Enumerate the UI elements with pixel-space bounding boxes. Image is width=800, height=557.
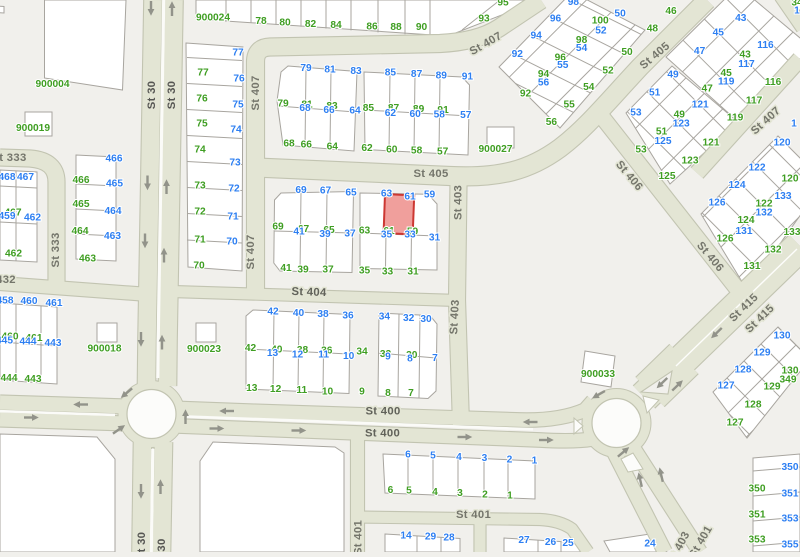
svg-text:68: 68 xyxy=(299,103,311,114)
svg-text:92: 92 xyxy=(512,49,524,60)
svg-text:120: 120 xyxy=(782,174,799,185)
svg-text:62: 62 xyxy=(385,108,397,119)
svg-text:66: 66 xyxy=(323,105,335,116)
svg-text:80: 80 xyxy=(279,18,291,29)
svg-text:128: 128 xyxy=(735,365,752,376)
svg-text:32: 32 xyxy=(403,313,415,324)
svg-text:St 405: St 405 xyxy=(413,168,448,180)
svg-text:37: 37 xyxy=(322,265,334,276)
svg-text:7: 7 xyxy=(408,388,414,399)
svg-text:71: 71 xyxy=(194,235,206,246)
svg-text:76: 76 xyxy=(233,74,245,85)
svg-text:53: 53 xyxy=(630,107,642,118)
svg-text:34: 34 xyxy=(379,312,391,323)
svg-text:48: 48 xyxy=(647,24,659,35)
svg-text:75: 75 xyxy=(196,119,208,130)
svg-text:463: 463 xyxy=(79,254,96,265)
svg-text:129: 129 xyxy=(754,348,771,359)
svg-text:353: 353 xyxy=(749,535,766,546)
svg-text:35: 35 xyxy=(381,230,393,241)
svg-text:9: 9 xyxy=(385,352,391,363)
svg-text:88: 88 xyxy=(390,22,402,33)
svg-text:465: 465 xyxy=(106,179,123,190)
svg-text:123: 123 xyxy=(673,119,690,130)
svg-text:60: 60 xyxy=(386,144,398,155)
svg-text:467: 467 xyxy=(17,172,34,183)
svg-text:St 404: St 404 xyxy=(291,286,327,299)
svg-text:2: 2 xyxy=(482,490,488,501)
svg-text:St 30: St 30 xyxy=(136,532,148,552)
svg-text:353: 353 xyxy=(782,514,799,525)
svg-text:117: 117 xyxy=(746,96,763,107)
svg-text:129: 129 xyxy=(764,382,781,393)
svg-text:124: 124 xyxy=(729,180,746,191)
svg-text:130: 130 xyxy=(774,331,791,342)
svg-text:56: 56 xyxy=(538,77,550,88)
svg-text:5: 5 xyxy=(430,451,436,462)
svg-text:69: 69 xyxy=(295,185,307,196)
svg-text:62: 62 xyxy=(361,143,373,154)
svg-text:57: 57 xyxy=(460,110,472,121)
svg-text:900033: 900033 xyxy=(581,369,615,380)
svg-text:St 333: St 333 xyxy=(50,232,62,267)
svg-text:12: 12 xyxy=(270,384,282,395)
svg-text:463: 463 xyxy=(104,231,121,242)
svg-text:40: 40 xyxy=(293,308,305,319)
svg-text:29: 29 xyxy=(425,532,437,543)
svg-text:126: 126 xyxy=(709,198,726,209)
svg-text:119: 119 xyxy=(718,77,735,88)
svg-text:461: 461 xyxy=(46,298,63,309)
svg-text:90: 90 xyxy=(416,22,428,33)
svg-text:444: 444 xyxy=(1,373,18,384)
svg-text:46: 46 xyxy=(665,6,677,17)
svg-text:81: 81 xyxy=(324,65,336,76)
svg-text:77: 77 xyxy=(232,48,244,59)
svg-text:122: 122 xyxy=(749,163,766,174)
svg-text:St 403: St 403 xyxy=(448,299,462,335)
svg-text:468: 468 xyxy=(0,172,16,183)
svg-text:51: 51 xyxy=(649,87,661,98)
svg-text:28: 28 xyxy=(443,533,455,544)
svg-text:464: 464 xyxy=(105,206,122,217)
svg-text:St 407: St 407 xyxy=(245,234,257,269)
svg-text:96: 96 xyxy=(550,14,562,25)
svg-text:12: 12 xyxy=(292,349,304,360)
svg-text:459: 459 xyxy=(0,211,16,222)
svg-text:1: 1 xyxy=(532,456,538,467)
svg-text:6: 6 xyxy=(388,485,394,496)
svg-text:98: 98 xyxy=(568,0,580,8)
svg-text:47: 47 xyxy=(702,84,714,95)
svg-text:458: 458 xyxy=(0,296,14,307)
svg-text:5: 5 xyxy=(406,486,412,497)
svg-text:St 333: St 333 xyxy=(0,152,27,164)
svg-text:67: 67 xyxy=(320,186,332,197)
svg-text:50: 50 xyxy=(621,47,633,58)
svg-text:120: 120 xyxy=(774,138,791,149)
svg-text:127: 127 xyxy=(718,381,735,392)
svg-text:128: 128 xyxy=(745,400,762,411)
svg-text:31: 31 xyxy=(429,233,441,244)
svg-text:47: 47 xyxy=(694,46,706,57)
svg-text:24: 24 xyxy=(644,539,656,550)
svg-text:82: 82 xyxy=(305,19,317,30)
svg-text:132: 132 xyxy=(765,245,782,256)
svg-text:St 407: St 407 xyxy=(250,75,262,110)
svg-text:74: 74 xyxy=(230,125,242,136)
svg-text:125: 125 xyxy=(655,136,672,147)
svg-text:49: 49 xyxy=(667,70,679,81)
svg-text:2: 2 xyxy=(507,455,513,466)
svg-text:77: 77 xyxy=(197,68,209,79)
svg-text:41: 41 xyxy=(293,227,305,238)
svg-text:27: 27 xyxy=(518,535,530,546)
svg-text:462: 462 xyxy=(24,213,41,224)
svg-text:73: 73 xyxy=(229,158,241,169)
svg-text:50: 50 xyxy=(614,8,626,19)
svg-text:7: 7 xyxy=(432,353,438,364)
svg-text:116: 116 xyxy=(765,77,782,88)
svg-text:133: 133 xyxy=(775,191,792,202)
svg-text:72: 72 xyxy=(194,207,206,218)
svg-text:132: 132 xyxy=(756,208,773,219)
svg-text:30: 30 xyxy=(156,538,168,551)
svg-text:St 400: St 400 xyxy=(365,428,400,440)
svg-text:57: 57 xyxy=(437,147,449,158)
svg-text:58: 58 xyxy=(434,110,446,121)
svg-text:125: 125 xyxy=(659,171,676,182)
svg-text:42: 42 xyxy=(267,307,279,318)
svg-text:31: 31 xyxy=(407,267,419,278)
svg-text:54: 54 xyxy=(583,82,595,93)
svg-text:350: 350 xyxy=(782,462,799,473)
svg-text:131: 131 xyxy=(736,226,753,237)
svg-text:464: 464 xyxy=(72,226,89,237)
svg-text:38: 38 xyxy=(317,309,329,320)
svg-text:37: 37 xyxy=(344,229,356,240)
svg-text:68: 68 xyxy=(283,139,295,150)
svg-text:131: 131 xyxy=(744,261,761,272)
svg-text:93: 93 xyxy=(478,14,490,25)
svg-text:41: 41 xyxy=(280,263,292,274)
svg-text:117: 117 xyxy=(738,59,755,70)
svg-text:52: 52 xyxy=(595,26,607,37)
svg-text:8: 8 xyxy=(407,354,413,365)
svg-text:355: 355 xyxy=(782,540,799,551)
svg-text:75: 75 xyxy=(232,100,244,111)
svg-text:127: 127 xyxy=(727,418,744,429)
svg-text:34: 34 xyxy=(356,347,368,358)
svg-text:56: 56 xyxy=(546,117,558,128)
svg-text:70: 70 xyxy=(193,261,205,272)
svg-text:11: 11 xyxy=(318,350,329,361)
svg-text:350: 350 xyxy=(749,484,766,495)
svg-text:78: 78 xyxy=(255,16,267,27)
svg-text:10: 10 xyxy=(322,387,334,398)
svg-text:87: 87 xyxy=(411,69,423,80)
svg-text:79: 79 xyxy=(277,99,289,110)
svg-text:1: 1 xyxy=(507,491,513,502)
svg-text:126: 126 xyxy=(717,234,734,245)
svg-text:72: 72 xyxy=(228,184,240,195)
svg-text:123: 123 xyxy=(682,156,699,167)
svg-text:92: 92 xyxy=(520,88,532,99)
svg-text:95: 95 xyxy=(497,0,509,9)
svg-text:3: 3 xyxy=(482,453,488,464)
svg-text:St 403: St 403 xyxy=(453,185,465,220)
svg-text:432: 432 xyxy=(0,274,16,286)
svg-text:60: 60 xyxy=(410,109,422,120)
svg-text:85: 85 xyxy=(363,103,375,114)
svg-text:36: 36 xyxy=(342,311,354,322)
svg-text:900019: 900019 xyxy=(16,123,50,134)
svg-text:54: 54 xyxy=(576,43,588,54)
svg-text:351: 351 xyxy=(749,510,766,521)
svg-text:9: 9 xyxy=(359,387,365,398)
svg-text:900004: 900004 xyxy=(36,79,70,90)
svg-text:13: 13 xyxy=(267,348,279,359)
svg-text:83: 83 xyxy=(350,66,362,77)
svg-text:444: 444 xyxy=(20,337,37,348)
svg-text:443: 443 xyxy=(25,374,42,385)
svg-text:26: 26 xyxy=(545,537,557,548)
svg-text:55: 55 xyxy=(564,99,576,110)
svg-text:St 30: St 30 xyxy=(166,81,178,110)
svg-text:121: 121 xyxy=(692,100,709,111)
svg-text:69: 69 xyxy=(272,222,284,233)
svg-text:466: 466 xyxy=(73,175,90,186)
svg-text:460: 460 xyxy=(21,296,38,307)
svg-text:349: 349 xyxy=(780,375,797,386)
svg-text:84: 84 xyxy=(330,20,342,31)
svg-text:466: 466 xyxy=(106,154,123,165)
svg-text:59: 59 xyxy=(424,190,436,201)
svg-text:St 400: St 400 xyxy=(365,406,400,418)
svg-text:8: 8 xyxy=(385,388,391,399)
svg-text:St 30: St 30 xyxy=(146,81,158,110)
svg-text:71: 71 xyxy=(227,212,239,223)
svg-text:443: 443 xyxy=(45,338,62,349)
svg-text:63: 63 xyxy=(359,226,371,237)
svg-text:79: 79 xyxy=(300,63,312,74)
svg-text:39: 39 xyxy=(297,265,309,276)
svg-text:133: 133 xyxy=(784,227,800,238)
svg-text:124: 124 xyxy=(738,215,755,226)
svg-text:900027: 900027 xyxy=(479,144,513,155)
svg-text:91: 91 xyxy=(462,72,474,83)
svg-text:74: 74 xyxy=(194,145,206,156)
svg-text:351: 351 xyxy=(782,489,799,500)
svg-text:119: 119 xyxy=(727,113,744,124)
svg-text:30: 30 xyxy=(420,314,432,325)
svg-text:66: 66 xyxy=(301,140,313,151)
svg-text:4: 4 xyxy=(456,452,462,463)
svg-text:64: 64 xyxy=(327,142,339,153)
svg-text:1: 1 xyxy=(791,119,797,130)
svg-text:42: 42 xyxy=(245,343,257,354)
svg-text:61: 61 xyxy=(404,192,416,203)
svg-text:52: 52 xyxy=(602,66,614,77)
svg-text:45: 45 xyxy=(713,28,725,39)
svg-text:86: 86 xyxy=(366,22,378,33)
svg-text:43: 43 xyxy=(735,13,747,24)
svg-text:465: 465 xyxy=(73,199,90,210)
svg-text:13: 13 xyxy=(246,383,258,394)
svg-text:11: 11 xyxy=(296,385,307,396)
svg-text:33: 33 xyxy=(404,230,416,241)
svg-text:4: 4 xyxy=(432,487,438,498)
svg-text:64: 64 xyxy=(349,106,361,117)
svg-text:70: 70 xyxy=(226,237,238,248)
svg-text:76: 76 xyxy=(196,94,208,105)
svg-text:10: 10 xyxy=(343,351,355,362)
svg-text:3: 3 xyxy=(457,488,463,499)
svg-text:121: 121 xyxy=(703,138,720,149)
svg-text:33: 33 xyxy=(382,267,394,278)
svg-text:St 401: St 401 xyxy=(456,509,491,521)
svg-text:63: 63 xyxy=(381,189,393,200)
svg-text:25: 25 xyxy=(562,538,574,549)
svg-text:1: 1 xyxy=(794,6,800,17)
svg-text:55: 55 xyxy=(557,60,569,71)
svg-text:900023: 900023 xyxy=(187,344,221,355)
svg-text:35: 35 xyxy=(359,266,371,277)
svg-text:65: 65 xyxy=(345,188,357,199)
svg-text:89: 89 xyxy=(436,70,448,81)
svg-text:39: 39 xyxy=(319,229,331,240)
svg-text:462: 462 xyxy=(5,249,22,260)
svg-text:900024: 900024 xyxy=(196,13,230,24)
svg-text:445: 445 xyxy=(0,336,13,347)
svg-text:85: 85 xyxy=(385,68,397,79)
svg-text:900018: 900018 xyxy=(88,344,122,355)
svg-text:6: 6 xyxy=(405,450,411,461)
svg-text:73: 73 xyxy=(194,181,206,192)
svg-text:94: 94 xyxy=(531,31,543,42)
svg-text:St 401: St 401 xyxy=(353,520,365,552)
svg-text:58: 58 xyxy=(411,145,423,156)
svg-text:53: 53 xyxy=(635,145,647,156)
svg-text:116: 116 xyxy=(757,40,774,51)
svg-text:14: 14 xyxy=(400,531,412,542)
